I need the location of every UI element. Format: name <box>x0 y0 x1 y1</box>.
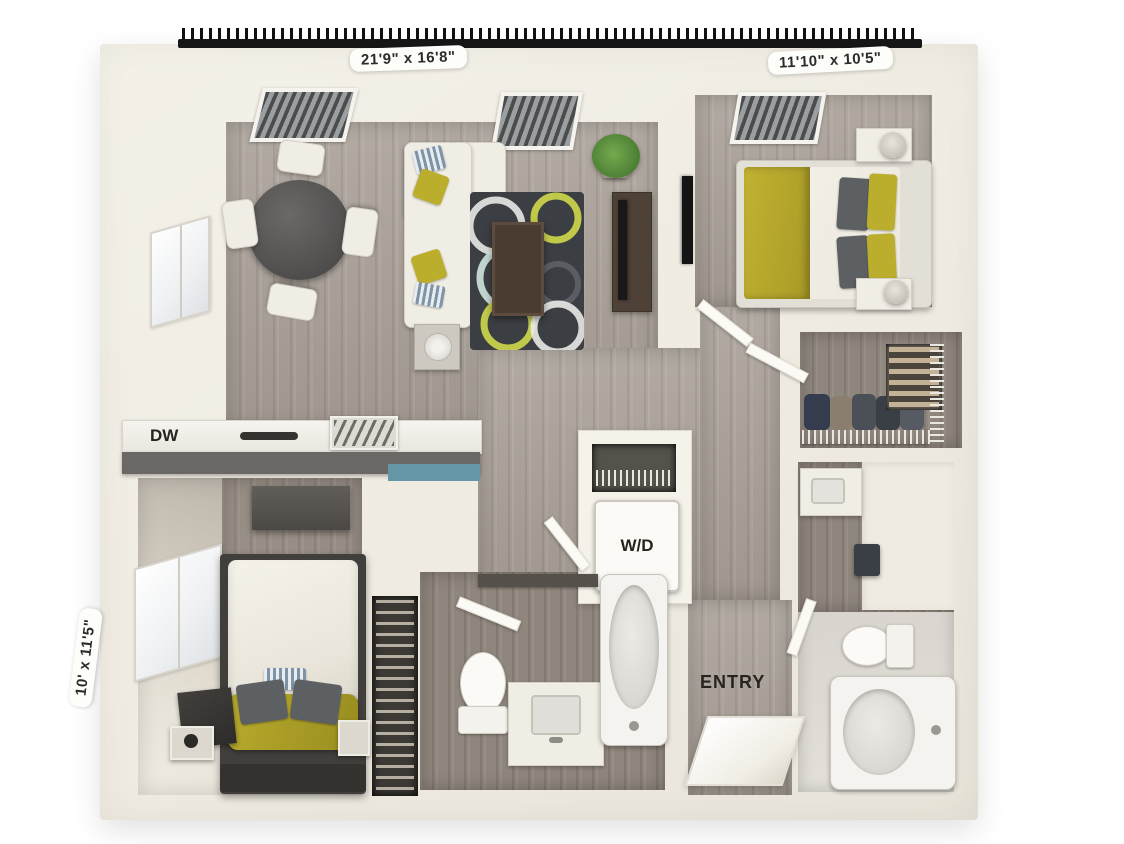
dining-table <box>248 180 350 280</box>
clothes-icon <box>852 394 876 430</box>
bath2-faucet-icon <box>549 737 563 743</box>
bedroom2-dimension-label: 10' x 11'5" <box>68 607 103 708</box>
stove-icon <box>330 416 398 450</box>
coffee-table <box>492 222 544 316</box>
dining-chair-west <box>221 198 259 250</box>
island-teal-accent <box>388 464 480 481</box>
living-room-dimension-label: 21'9" x 16'8" <box>350 45 467 72</box>
bathroom1-wall-jog <box>862 462 954 610</box>
bed2-headboard <box>220 764 366 792</box>
bath2-toilet-bowl-icon <box>460 652 506 714</box>
bath1-toilet-tank-icon <box>886 624 914 668</box>
bath2-tub-basin-icon <box>609 585 659 709</box>
speaker-cone-icon <box>184 734 198 748</box>
window-dining-icon <box>249 88 358 142</box>
bath1-tub-basin-icon <box>843 689 915 775</box>
bed2-pillow-gray-2 <box>289 679 342 725</box>
bed2-pillow-gray-1 <box>235 679 288 725</box>
decanter-icon <box>424 333 452 361</box>
tv-living-icon <box>618 200 627 300</box>
tv-bedroom1-icon <box>682 176 693 264</box>
lamp-icon-top <box>880 132 906 158</box>
clothes-icon <box>804 394 830 430</box>
bath1-vanity <box>800 468 862 516</box>
plant-icon <box>592 134 640 178</box>
bath1-towel-icon <box>854 544 880 576</box>
shoe-shelves-icon <box>376 600 414 792</box>
closet-wire-shelf-icon <box>802 430 930 444</box>
bath2-toilet-tank-icon <box>458 706 508 734</box>
window-living-icon <box>491 92 583 150</box>
bath2-mirror-ledge <box>478 574 598 587</box>
dishwasher-label: DW <box>150 426 178 446</box>
corridor-floor <box>700 300 780 600</box>
bed1-yellow-throw <box>744 167 810 299</box>
lamp-icon-bottom <box>884 280 908 304</box>
washer-dryer-label: W/D <box>620 536 653 556</box>
stove-grate <box>334 420 394 446</box>
window-mullion <box>178 557 180 668</box>
bath1-sink-icon <box>811 478 845 504</box>
wire-shelf-icon <box>596 470 672 486</box>
window-left-dining-icon <box>150 215 210 328</box>
kitchen-sink-icon <box>240 432 298 440</box>
shoe-closet <box>372 596 418 796</box>
bath2-vanity <box>508 682 604 766</box>
dining-chair-east <box>341 206 379 258</box>
bath1-tub <box>830 676 956 790</box>
entry-label: ENTRY <box>700 672 765 693</box>
bed2-speaker-right <box>338 720 370 756</box>
bath1-faucet-icon <box>931 725 941 735</box>
bedroom2-dresser <box>252 486 350 530</box>
bath2-tub <box>600 574 668 746</box>
side-table <box>414 324 460 370</box>
closet-wire-side-icon <box>930 344 944 444</box>
laundry-shelf <box>592 444 676 492</box>
window-bedroom1-icon <box>729 92 826 144</box>
bath2-sink-icon <box>531 695 581 735</box>
bath1-toilet-bowl-icon <box>842 626 892 666</box>
bed2-speaker-left <box>170 726 214 760</box>
clothes-icon <box>830 396 852 430</box>
bath2-faucet-tub-icon <box>629 721 639 731</box>
bed1-pillow-yellow-1 <box>867 173 898 230</box>
dining-chair-north <box>276 139 326 177</box>
window-mullion <box>180 225 182 318</box>
balcony-railing-bar <box>178 39 922 48</box>
